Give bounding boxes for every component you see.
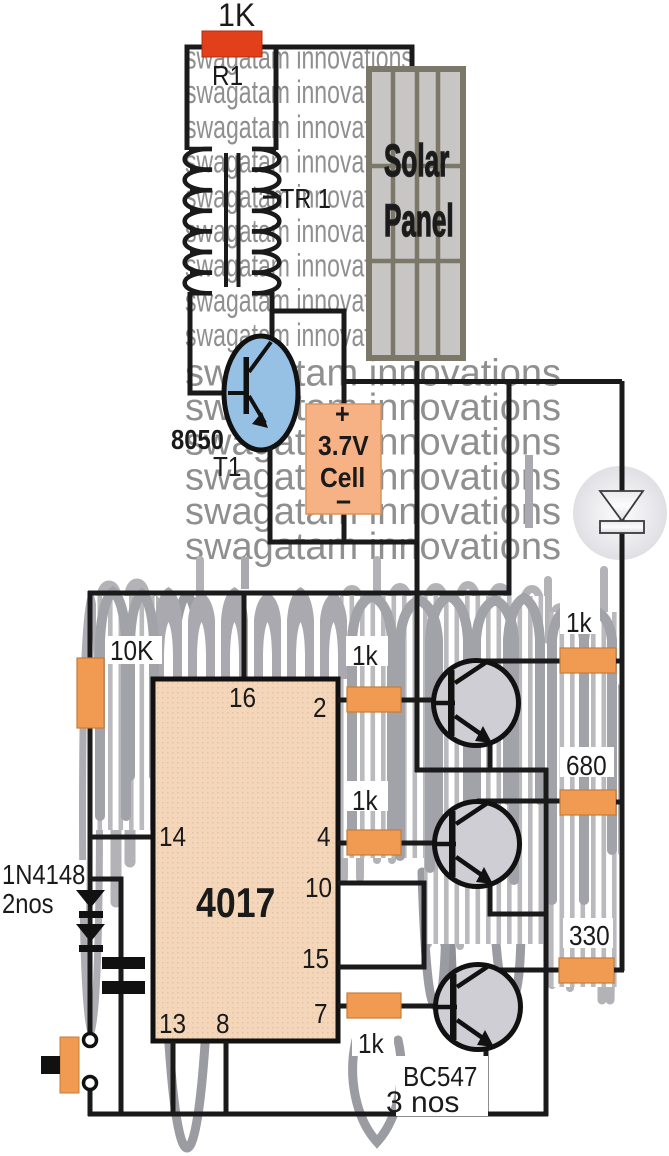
svg-text:1k: 1k [566,606,593,638]
svg-text:330: 330 [569,919,610,951]
svg-text:1k: 1k [358,1027,385,1059]
svg-text:TR 1: TR 1 [280,184,331,214]
svg-text:2: 2 [313,691,327,723]
svg-text:4: 4 [317,820,331,852]
svg-text:4017: 4017 [196,880,275,926]
svg-text:Panel: Panel [384,196,454,246]
svg-text:–: – [336,484,351,518]
svg-text:14: 14 [159,820,186,852]
svg-text:+: + [335,398,350,430]
svg-text:7: 7 [314,997,328,1029]
svg-text:3.7V: 3.7V [318,430,369,462]
svg-text:1K: 1K [218,0,255,33]
svg-text:1N4148: 1N4148 [2,858,85,890]
svg-text:680: 680 [566,749,607,781]
svg-text:2nos: 2nos [2,887,54,919]
svg-text:T1: T1 [213,450,241,482]
svg-text:1k: 1k [352,639,379,671]
svg-text:16: 16 [229,681,256,713]
svg-text:1k: 1k [352,784,379,816]
svg-text:Solar: Solar [384,136,449,186]
svg-text:13: 13 [159,1007,186,1039]
svg-text:8: 8 [216,1007,230,1039]
svg-text:15: 15 [302,942,329,974]
svg-text:R1: R1 [212,59,243,91]
svg-text:10K: 10K [110,634,154,666]
svg-text:10: 10 [305,871,332,903]
svg-text:3 nos: 3 nos [386,1086,459,1119]
